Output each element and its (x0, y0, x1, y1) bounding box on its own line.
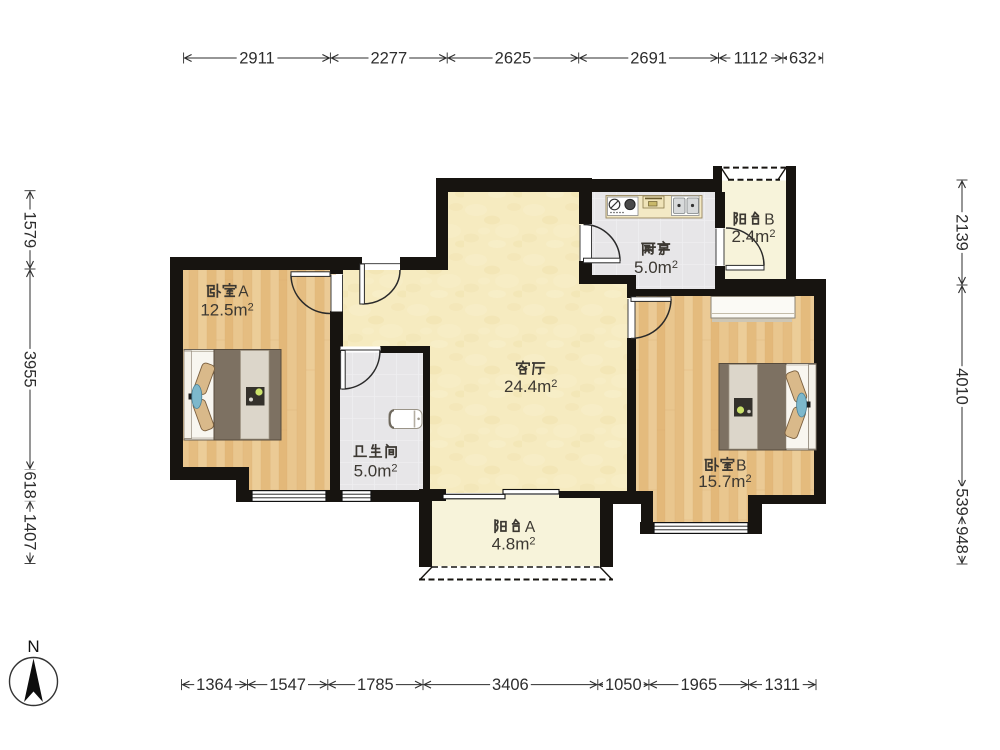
svg-text:1965: 1965 (680, 676, 717, 694)
svg-text:948: 948 (952, 526, 970, 554)
svg-text:5.0m2: 5.0m2 (354, 461, 398, 480)
svg-text:A: A (238, 283, 249, 300)
svg-text:1785: 1785 (357, 676, 394, 694)
svg-text:2.4m2: 2.4m2 (732, 227, 776, 246)
svg-text:1311: 1311 (765, 676, 800, 694)
svg-text:2139: 2139 (952, 214, 970, 251)
svg-text:1364: 1364 (196, 676, 233, 694)
svg-text:2277: 2277 (370, 49, 407, 67)
svg-text:A: A (525, 519, 536, 536)
svg-text:4010: 4010 (952, 368, 970, 405)
svg-text:2625: 2625 (495, 49, 532, 67)
svg-text:618: 618 (20, 471, 38, 499)
svg-text:B: B (764, 211, 774, 228)
svg-text:2911: 2911 (239, 49, 274, 67)
svg-text:5.0m2: 5.0m2 (634, 258, 678, 277)
svg-text:539: 539 (952, 488, 970, 516)
svg-text:4.8m2: 4.8m2 (492, 535, 536, 554)
svg-text:1579: 1579 (20, 211, 38, 248)
svg-text:15.7m2: 15.7m2 (698, 472, 751, 491)
svg-text:1112: 1112 (734, 49, 768, 67)
svg-text:2691: 2691 (630, 49, 667, 67)
svg-text:1407: 1407 (20, 514, 38, 551)
svg-text:632: 632 (789, 49, 817, 67)
svg-text:24.4m2: 24.4m2 (504, 377, 557, 396)
svg-text:3955: 3955 (20, 351, 38, 388)
svg-text:3406: 3406 (492, 676, 529, 694)
svg-text:12.5m2: 12.5m2 (200, 301, 253, 320)
svg-text:1050: 1050 (605, 676, 642, 694)
svg-text:N: N (27, 637, 39, 656)
svg-text:1547: 1547 (269, 676, 306, 694)
